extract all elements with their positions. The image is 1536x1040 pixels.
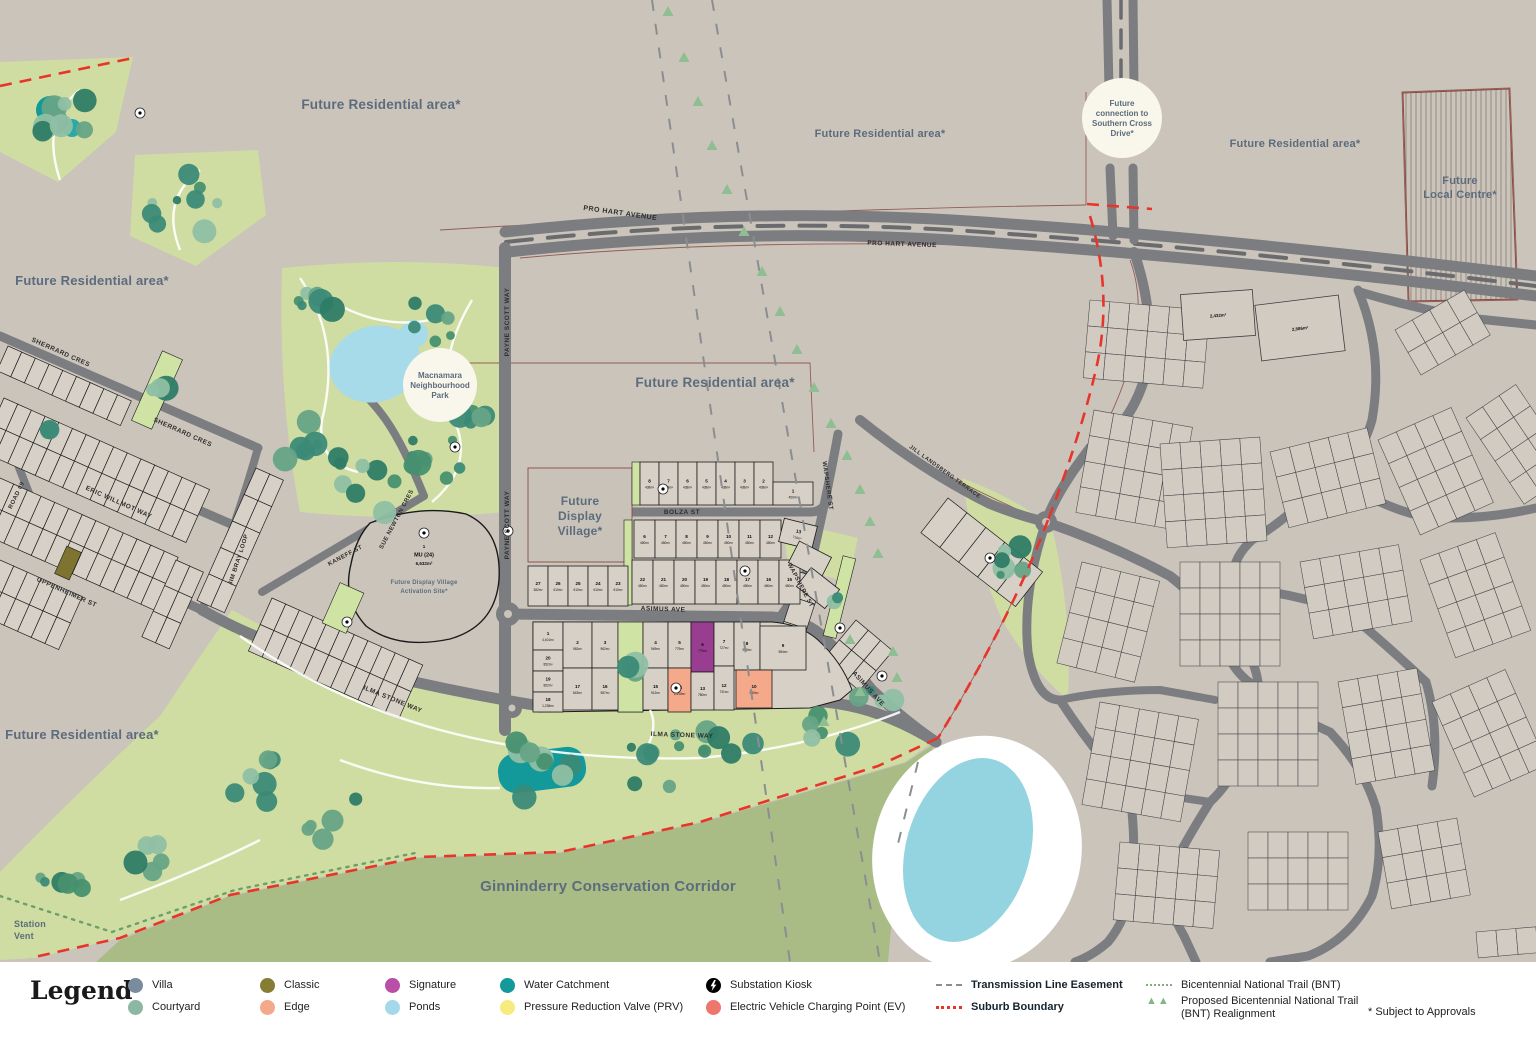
parcel [1085, 326, 1107, 354]
parcel-grid [1113, 842, 1219, 928]
lot-number: 19 [545, 677, 551, 682]
parcel [1437, 818, 1461, 847]
callout-text: Southern Cross [1092, 119, 1153, 128]
parcel [1220, 438, 1242, 465]
lot [588, 566, 608, 606]
edge-dot-icon [260, 1000, 275, 1015]
tree [408, 321, 421, 334]
lot-area: 450m² [764, 584, 773, 588]
lot [659, 462, 678, 505]
transmission-dash-icon [936, 984, 962, 986]
tree [320, 297, 345, 322]
lot-area: 852m² [543, 663, 552, 667]
lot-number: 20 [545, 656, 551, 661]
lot-area: 450m² [743, 584, 752, 588]
lot [563, 622, 592, 668]
lot-number: 9 [782, 643, 785, 648]
lot [714, 622, 734, 666]
parcel [1145, 331, 1167, 359]
lot-number: 10 [726, 534, 732, 539]
parcel [1158, 845, 1180, 873]
tree [994, 552, 1010, 568]
parcel [1240, 437, 1262, 464]
mu-sub-line: Future Display Village [391, 580, 458, 586]
lot-number: 2 [762, 479, 765, 484]
tree [302, 822, 315, 835]
legend-item-prv: Pressure Reduction Valve (PRV) [500, 998, 683, 1016]
parcel [1180, 588, 1200, 614]
lot-number: 1 [547, 631, 550, 636]
lot-area: 1,238m² [542, 704, 554, 708]
parcel [1180, 640, 1200, 666]
lot-area: 962m² [600, 647, 609, 651]
lot-number: 7 [723, 639, 726, 644]
map-canvas[interactable]: 14,401m²20852m²19852m²181,238m²2962m²396… [0, 0, 1536, 962]
parcel [1516, 927, 1536, 955]
lot [608, 566, 628, 606]
callout-text: connection to [1096, 109, 1149, 118]
legend-item-courtyard: Courtyard [128, 998, 200, 1016]
ponds-dot-icon [385, 1000, 400, 1015]
lot-number: 10 [751, 684, 757, 689]
tree [273, 447, 298, 472]
lot-number: 6 [643, 534, 646, 539]
parcel [1175, 873, 1197, 901]
parcel [1133, 896, 1155, 924]
lot [533, 622, 563, 650]
parcel [1180, 562, 1200, 588]
street-label: PAYNE SCOTT WAY [504, 491, 511, 560]
lot-number: 7 [667, 479, 670, 484]
parcel [1220, 614, 1240, 640]
tree [297, 410, 321, 434]
tree [406, 450, 432, 476]
parcel [1298, 760, 1318, 786]
tree [440, 471, 453, 484]
lot-number: 17 [745, 577, 751, 582]
bnt-triangles-icon: ▲▲ [1146, 995, 1172, 1007]
parcel [1308, 832, 1328, 858]
lot [632, 560, 653, 604]
tree [367, 460, 388, 481]
lot [760, 520, 781, 558]
lot-area: 450m² [661, 541, 670, 545]
tree [297, 301, 306, 310]
lot-area: 450m² [682, 541, 691, 545]
stacked-label: Local Centre* [1423, 189, 1497, 201]
parcel [1260, 562, 1280, 588]
legend-item-villa: Villa [128, 976, 173, 994]
lot-area: 610m² [553, 588, 562, 592]
lot-area: 450m² [785, 584, 794, 588]
parcel [1238, 734, 1258, 760]
lot-area: 450m² [724, 541, 733, 545]
lot-number: 21 [661, 577, 667, 582]
lot-area: 908m² [742, 648, 751, 652]
lot-area: 949m² [651, 647, 660, 651]
parcel [1328, 858, 1348, 884]
tree [356, 459, 370, 473]
lot-area: 450m² [766, 541, 775, 545]
parcel [1278, 734, 1298, 760]
parcel [1442, 844, 1466, 873]
stacked-label: Future [561, 494, 600, 508]
parcel [1238, 682, 1258, 708]
tree [303, 432, 327, 456]
lot-number: 25 [575, 581, 581, 586]
mu-sub-line: Activation Site* [400, 589, 448, 595]
callout-text: Macnamara [418, 371, 463, 380]
lot-number: 6 [686, 479, 689, 484]
tree [997, 571, 1005, 579]
parcel [1138, 844, 1160, 872]
callout-text: Future [1110, 99, 1135, 108]
lot-area: 450m² [788, 496, 797, 500]
lot-area: 610m² [593, 588, 602, 592]
tree [328, 447, 349, 468]
parcel [1278, 708, 1298, 734]
parcel [1193, 901, 1215, 929]
tree [472, 408, 492, 428]
parcel [1308, 884, 1328, 910]
parcel [1258, 760, 1278, 786]
parcel [1103, 354, 1125, 382]
parcel [1128, 303, 1150, 331]
parcel [1165, 520, 1187, 547]
lot [634, 520, 655, 558]
tree [73, 879, 91, 897]
legend-item-suburb-boundary: Suburb Boundary [936, 998, 1064, 1016]
parcel [1195, 875, 1217, 903]
parcel [1202, 466, 1224, 493]
lot-area: 912m² [651, 691, 660, 695]
parcel [1268, 832, 1288, 858]
parcel-grid [1180, 562, 1280, 666]
tree [346, 484, 365, 503]
lot-number: 16 [602, 684, 608, 689]
lot-number: 5 [678, 640, 681, 645]
lot-area: 779m² [698, 649, 707, 653]
utility-marker-dot [661, 487, 664, 490]
parcel [1113, 894, 1135, 922]
parcel [1248, 858, 1268, 884]
lot [760, 626, 806, 670]
callout-text: Park [431, 391, 449, 400]
legend-item-ponds: Ponds [385, 998, 440, 1016]
parcel [1153, 897, 1175, 925]
parcel [1248, 884, 1268, 910]
parcel [1298, 708, 1318, 734]
lot-number: 11 [747, 534, 752, 539]
legend-item-classic: Classic [260, 976, 319, 994]
lot-number: 17 [575, 684, 581, 689]
lot-area: 450m² [703, 541, 712, 545]
parcel [1148, 305, 1170, 333]
lot-number: 3 [743, 479, 746, 484]
tree [259, 750, 277, 768]
lot-area: 962m² [573, 647, 582, 651]
parcel [1135, 870, 1157, 898]
parcel [1164, 494, 1186, 521]
lot [695, 560, 716, 604]
lot-area: 731m² [719, 690, 728, 694]
parcel [1161, 793, 1185, 822]
lot [758, 560, 779, 604]
parcel [1258, 682, 1278, 708]
tree [349, 793, 362, 806]
lot [568, 566, 588, 606]
parcel [1225, 516, 1247, 543]
area-label: Future Residential area* [15, 273, 169, 288]
lot-area: 610m² [573, 588, 582, 592]
lot-area: 4,401m² [542, 638, 554, 642]
tree [312, 829, 333, 850]
parcel [1245, 515, 1267, 542]
parcel [1328, 884, 1348, 910]
stacked-label: Station [14, 919, 46, 929]
tree [698, 745, 711, 758]
parcel-grid [1378, 818, 1470, 909]
lot [528, 566, 548, 606]
parcel [1170, 741, 1194, 770]
tree [1008, 535, 1031, 558]
classic-dot-icon [260, 978, 275, 993]
lot-number: 4 [724, 479, 727, 484]
parcel [1218, 708, 1238, 734]
lot-area: 727m² [719, 646, 728, 650]
tree [173, 196, 181, 204]
parcel [1163, 359, 1185, 387]
lot-number: 22 [640, 577, 646, 582]
parcel [1260, 588, 1280, 614]
tree [40, 420, 59, 439]
stacked-label: Village* [558, 524, 603, 538]
tree [192, 219, 216, 243]
lot [691, 622, 714, 672]
utility-marker-dot [674, 686, 677, 689]
parcel-grid [1300, 545, 1412, 639]
lot [754, 462, 773, 505]
parcel [1308, 858, 1328, 884]
parcel [1183, 361, 1205, 389]
parcel [1218, 734, 1238, 760]
parcel [1240, 640, 1260, 666]
tree [225, 783, 244, 802]
parcel [1298, 682, 1318, 708]
lot-area: 438m² [645, 486, 654, 490]
parcel [1162, 469, 1184, 496]
parcel [1184, 493, 1206, 520]
parcel [1288, 858, 1308, 884]
lot-number: 6 [701, 642, 704, 647]
legend-bar: Legend Villa Courtyard Classic Edge Sign… [0, 962, 1536, 1040]
parcel [1125, 329, 1147, 357]
lot [655, 520, 676, 558]
legend-title: Legend [30, 976, 133, 1005]
parcel [1243, 489, 1265, 516]
lot [592, 622, 618, 668]
big-lot: 2,586m² [1255, 295, 1345, 361]
parcel [1143, 357, 1165, 385]
parcel [1180, 614, 1200, 640]
parcel [1288, 832, 1308, 858]
tree [76, 121, 93, 138]
lot-number: 16 [766, 577, 772, 582]
lot-number: 12 [721, 683, 727, 688]
lot [716, 462, 735, 505]
parcel [1160, 443, 1182, 470]
bnt-dotted-icon [1146, 984, 1172, 986]
parcel [1222, 464, 1244, 491]
lot-number: 27 [535, 581, 541, 586]
parcel [1278, 760, 1298, 786]
lot-number: 13 [700, 686, 706, 691]
tree [617, 656, 639, 678]
utility-marker-dot [453, 445, 456, 448]
parcel-grid [1082, 702, 1199, 822]
parcel [1123, 355, 1145, 383]
lot-area: 450m² [745, 541, 754, 545]
parcel [1118, 842, 1140, 870]
lot-number: 2 [576, 640, 579, 645]
lot-number: 24 [595, 581, 601, 586]
tree [73, 89, 97, 113]
area-label: Future Residential area* [5, 727, 159, 742]
parcel [1383, 570, 1407, 599]
parcel [1178, 847, 1200, 875]
lot [734, 622, 760, 670]
prv-dot-icon [500, 1000, 515, 1015]
parcel-grid [1160, 437, 1267, 548]
tree [388, 474, 402, 488]
asimus-block: 14,401m²20852m²19852m²181,238m²2962m²396… [533, 622, 852, 712]
tree [50, 114, 73, 137]
lot-number: 3 [604, 640, 607, 645]
utility-marker-dot [743, 569, 746, 572]
lot [697, 520, 718, 558]
parcel [1200, 440, 1222, 467]
lot-area: 438m² [721, 486, 730, 490]
lot-area: 450m² [638, 584, 647, 588]
lot-number: 9 [706, 534, 709, 539]
tree [178, 164, 199, 185]
parcel [1258, 708, 1278, 734]
parcel [1406, 719, 1430, 748]
parcel [1402, 694, 1426, 723]
parcel [1223, 490, 1245, 517]
parcel [1268, 858, 1288, 884]
tree [835, 732, 860, 757]
tree [243, 768, 259, 784]
parcel [1165, 767, 1189, 796]
parcel [1242, 463, 1264, 490]
tree [636, 743, 658, 765]
lot-area: 852m² [543, 684, 552, 688]
lot [697, 462, 716, 505]
tree [212, 198, 222, 208]
tree [408, 436, 418, 446]
utility-marker-dot [138, 111, 141, 114]
lot-area: 610m² [613, 588, 622, 592]
parcel [1248, 832, 1268, 858]
legend-item-transmission: Transmission Line Easement [936, 976, 1123, 994]
parcel [1446, 869, 1470, 898]
lot-number: 18 [724, 577, 730, 582]
parcel [1204, 492, 1226, 519]
lot [674, 560, 695, 604]
parcel [1411, 745, 1435, 774]
lot [533, 650, 563, 671]
lot-area: 438m² [683, 486, 692, 490]
lot-area: 438m² [759, 486, 768, 490]
parcel [1105, 328, 1127, 356]
tree [322, 810, 344, 832]
parcel [1088, 300, 1110, 328]
tree [742, 733, 764, 755]
lot-area: 382m² [533, 588, 542, 592]
lot [676, 520, 697, 558]
stacked-label: Display [558, 509, 602, 523]
area-label: Future Residential area* [301, 97, 461, 112]
parcel [1220, 640, 1240, 666]
parcel [1238, 760, 1258, 786]
lot-number: 15 [653, 684, 659, 689]
parcel [1218, 682, 1238, 708]
tree [408, 297, 421, 310]
tree [430, 336, 442, 348]
lot [563, 668, 592, 710]
lot-number: 26 [555, 581, 561, 586]
lot [735, 462, 754, 505]
area-label: Future Residential area* [635, 375, 795, 390]
parcel [1476, 930, 1498, 958]
area-label: Future Residential area* [815, 128, 946, 140]
lot-number: 7 [664, 534, 667, 539]
villa-dot-icon [128, 978, 143, 993]
lot [592, 668, 618, 710]
lot [716, 560, 737, 604]
lot-number: 8 [746, 641, 749, 646]
lot-area: 987m² [600, 691, 609, 695]
parcel [1240, 614, 1260, 640]
lot-number: 19 [703, 577, 709, 582]
tree [512, 785, 536, 809]
parcel [1180, 441, 1202, 468]
substation-kiosk-icon [706, 978, 721, 993]
tree [627, 776, 642, 791]
parcel [1205, 518, 1227, 545]
lot-area: 984m² [778, 650, 787, 654]
tree [441, 311, 454, 324]
lot [548, 566, 568, 606]
ev-dot-icon [706, 1000, 721, 1015]
stacked-label: Vent [14, 931, 34, 941]
lot-number: 4 [654, 640, 657, 645]
lot [691, 672, 714, 710]
parcel-grid [1248, 832, 1348, 910]
parcel [1240, 588, 1260, 614]
parcel [1379, 545, 1403, 574]
lot [773, 482, 813, 505]
lot-number: 1 [792, 489, 795, 494]
lot-area: 450m² [701, 584, 710, 588]
legend-item-signature: Signature [385, 976, 456, 994]
payne-west-row: 27382m²26610m²25610m²24610m²23610m² [528, 566, 628, 606]
street-label: BOLZA ST [664, 509, 700, 516]
parcel [1218, 760, 1238, 786]
lot-area: 843m² [573, 691, 582, 695]
callout-text: Neighbourhood [410, 381, 470, 390]
